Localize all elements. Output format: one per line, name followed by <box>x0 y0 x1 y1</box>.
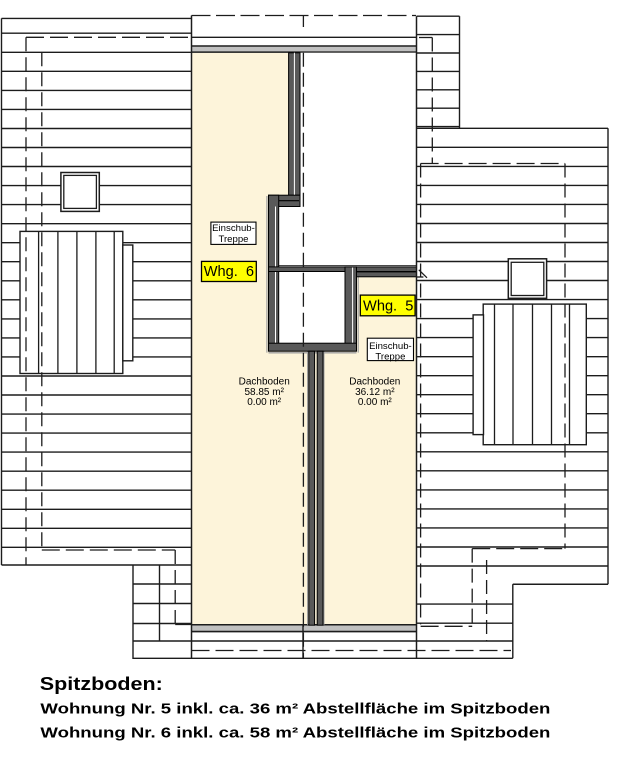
svg-text:0.00 m²: 0.00 m² <box>358 397 393 408</box>
svg-text:Spitzboden:: Spitzboden: <box>40 674 163 694</box>
svg-text:Einschub-: Einschub- <box>212 223 255 234</box>
svg-text:Wohnung Nr. 5 inkl. ca. 36 m²: Wohnung Nr. 5 inkl. ca. 36 m² Abstellflä… <box>40 702 550 718</box>
svg-text:Whg. 5: Whg. 5 <box>363 299 413 315</box>
svg-text:Treppe: Treppe <box>375 351 405 362</box>
svg-text:Wohnung Nr. 6 inkl. ca. 58 m²: Wohnung Nr. 6 inkl. ca. 58 m² Abstellflä… <box>40 725 550 741</box>
svg-text:Whg. 6: Whg. 6 <box>204 264 254 280</box>
svg-text:0.00 m²: 0.00 m² <box>247 397 282 408</box>
svg-text:Einschub-: Einschub- <box>369 341 412 352</box>
svg-text:Treppe: Treppe <box>218 234 248 245</box>
